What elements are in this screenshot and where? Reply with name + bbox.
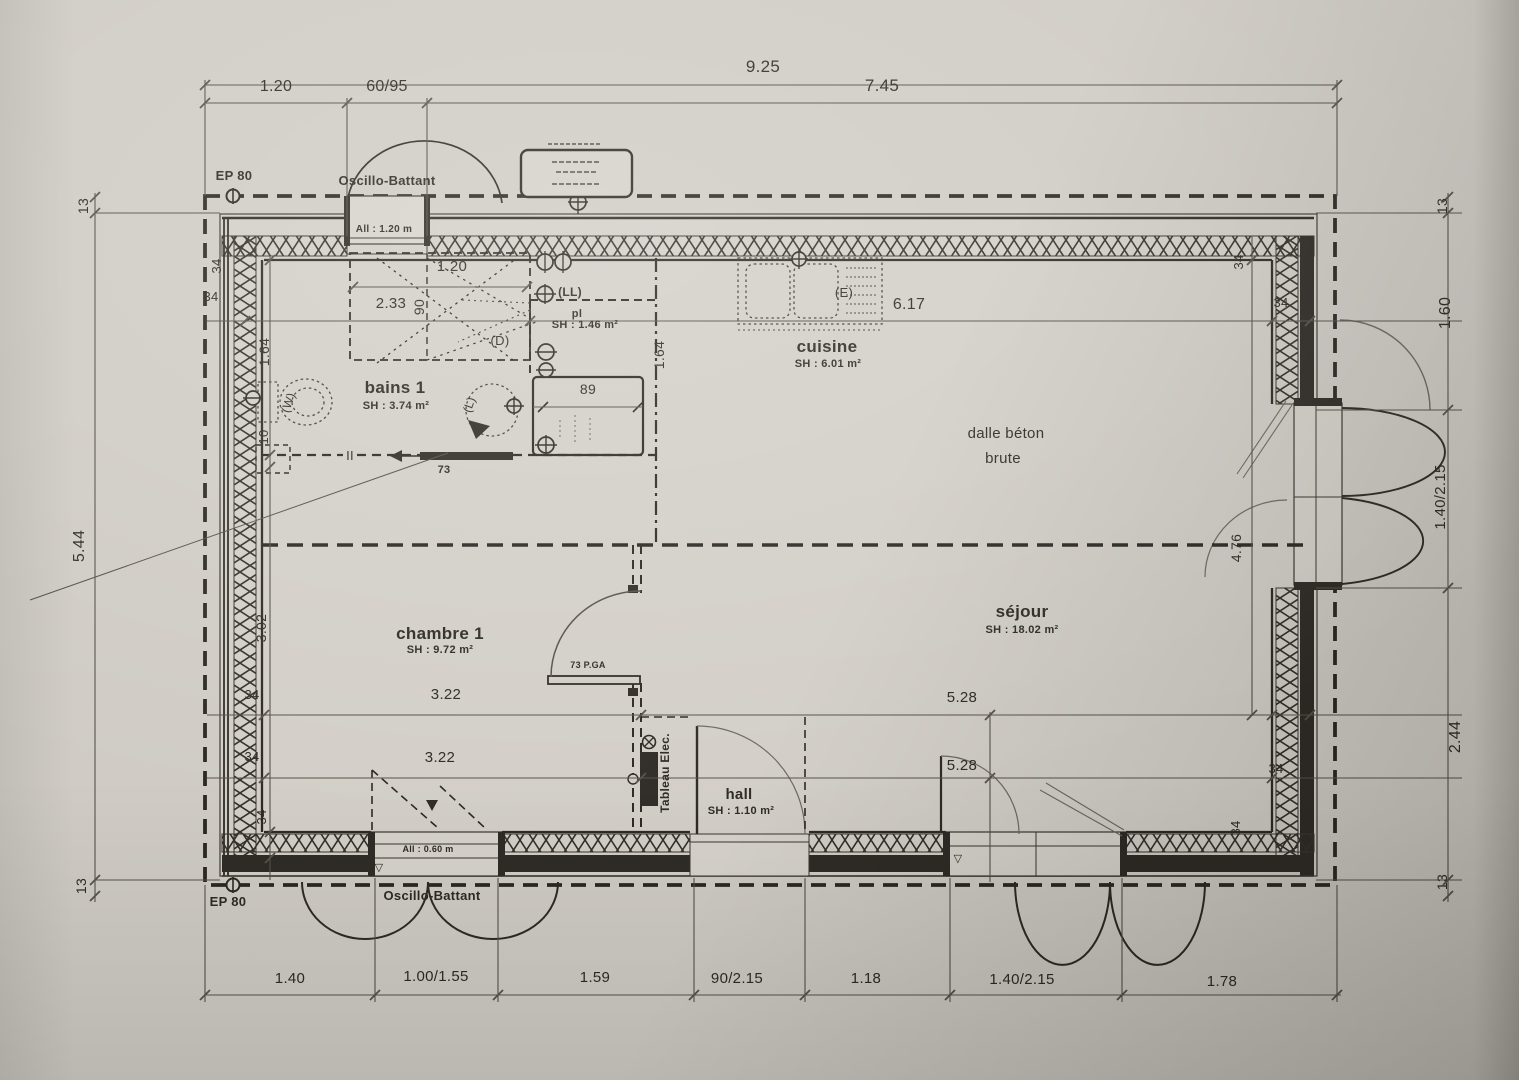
- label-dim-bot-2: 1.00/1.55: [403, 968, 468, 985]
- label-dim-34-right-wall-bottom: 34: [1228, 820, 1243, 835]
- label-dim-34-right-wall-top: 34: [1231, 254, 1246, 269]
- label-dim-13-left-bottom: 13: [73, 878, 89, 894]
- label-dim-bains-height: 1.64: [256, 338, 272, 366]
- label-tableau-elec: Tableau Elec.: [658, 733, 672, 813]
- label-allege-bottom: All : 0.60 m: [402, 844, 453, 854]
- label-oscillo-top: Oscillo-Battant: [339, 173, 436, 188]
- chambre-door-leaf: [548, 676, 640, 684]
- label-ep80-top: EP 80: [216, 168, 253, 183]
- bains-sliding-door: [420, 452, 513, 460]
- label-dim-34-right-line1: 34: [1273, 295, 1288, 310]
- label-dim-617: 6.17: [893, 296, 925, 313]
- label-ep80-bottom: EP 80: [210, 894, 247, 909]
- window-swing-arcs: [1342, 408, 1445, 584]
- label-tri-mark-1: ▽: [375, 862, 384, 874]
- label-dim-34-left-wall-top: 34: [209, 258, 224, 273]
- label-dim-cloison-10: 10: [256, 429, 271, 444]
- label-allege-top: All : 1.20 m: [356, 224, 412, 235]
- label-tri-mark-2: ▽: [954, 853, 963, 865]
- floor-plan-photo: 9.251.2060/957.45EP 80Oscillo-BattantAll…: [0, 0, 1519, 1080]
- label-room-hall: hall: [725, 786, 752, 803]
- label-note-dalle-1: dalle béton: [968, 425, 1045, 442]
- label-dim-left-overall: 5.44: [71, 530, 88, 562]
- label-dim-tremie-90: 90: [411, 299, 427, 315]
- label-note-dalle-2: brute: [985, 450, 1021, 467]
- label-dim-top-2: 60/95: [366, 78, 408, 95]
- label-room-pl-area: SH : 1.46 m²: [552, 319, 619, 331]
- label-dim-bot-5: 1.18: [851, 970, 881, 987]
- label-dim-13-right-bottom: 13: [1434, 874, 1450, 890]
- label-dim-right-1: 1.60: [1437, 297, 1454, 329]
- label-fixture-d: (D): [491, 333, 510, 348]
- label-dim-322-a: 3.22: [431, 686, 461, 703]
- label-dim-bot-6: 1.40/2.15: [989, 971, 1054, 988]
- label-room-bains-area: SH : 3.74 m²: [363, 400, 430, 412]
- label-room-sejour: séjour: [996, 602, 1049, 621]
- label-dim-top-3: 7.45: [865, 76, 899, 95]
- label-dim-34-left-line2: 34: [244, 687, 259, 702]
- label-dim-placard-89: 89: [580, 381, 596, 397]
- label-dim-34-left-wall-bottom: 34: [254, 809, 269, 824]
- label-dim-right-3: 2.44: [1447, 721, 1464, 753]
- label-dim-porte-73: 73: [438, 464, 451, 476]
- floor-plan-drawing: 9.251.2060/957.45EP 80Oscillo-BattantAll…: [0, 0, 1519, 1080]
- window-swing-arcs: [1015, 882, 1205, 965]
- label-door-73pga: 73 P.GA: [570, 660, 606, 670]
- label-room-sejour-area: SH : 18.02 m²: [986, 624, 1059, 636]
- label-dim-528-a: 5.28: [947, 689, 977, 706]
- label-room-chambre: chambre 1: [396, 624, 484, 643]
- label-dim-tremie-120: 1.20: [437, 258, 467, 275]
- label-oscillo-bottom: Oscillo-Battant: [384, 888, 481, 903]
- label-fixture-e: (E): [835, 285, 853, 300]
- label-dim-overall-top: 9.25: [746, 57, 780, 76]
- label-dim-34-right-line2: 34: [1268, 761, 1283, 776]
- label-room-hall-area: SH : 1.10 m²: [708, 805, 775, 817]
- label-dim-476: 4.76: [1228, 534, 1244, 562]
- label-dim-bot-4: 90/2.15: [711, 970, 763, 987]
- label-room-bains: bains 1: [365, 378, 426, 397]
- note-box: [521, 144, 632, 197]
- label-dim-bot-7: 1.78: [1207, 973, 1237, 990]
- upper-swing-arc: [1340, 320, 1430, 410]
- label-dim-top-1: 1.20: [260, 78, 292, 95]
- label-dim-13-right-top: 13: [1434, 198, 1450, 214]
- window-swing-arc: [347, 141, 502, 203]
- label-dim-233: 2.33: [376, 295, 406, 312]
- label-dim-chambre-height: 3.02: [253, 614, 269, 642]
- label-dim-34-left-line3: 34: [244, 749, 259, 764]
- label-dim-right-2: 1.40/2.15: [1432, 464, 1449, 529]
- label-room-cuisine-area: SH : 6.01 m²: [795, 358, 862, 370]
- label-dim-164-mid: 1.64: [651, 341, 667, 369]
- label-dim-bot-1: 1.40: [275, 970, 305, 987]
- label-dim-13-left-top: 13: [75, 198, 91, 214]
- label-dim-322-b: 3.22: [425, 749, 455, 766]
- label-room-cuisine: cuisine: [797, 337, 858, 356]
- label-sym-ii: II: [346, 448, 354, 463]
- label-dim-34-left-line1: 34: [203, 289, 218, 304]
- electrical-panel-icon: [640, 752, 658, 806]
- label-room-chambre-area: SH : 9.72 m²: [407, 644, 474, 656]
- label-fixture-ll: (LL): [558, 285, 582, 299]
- label-dim-528-b: 5.28: [947, 757, 977, 774]
- label-dim-bot-3: 1.59: [580, 969, 610, 986]
